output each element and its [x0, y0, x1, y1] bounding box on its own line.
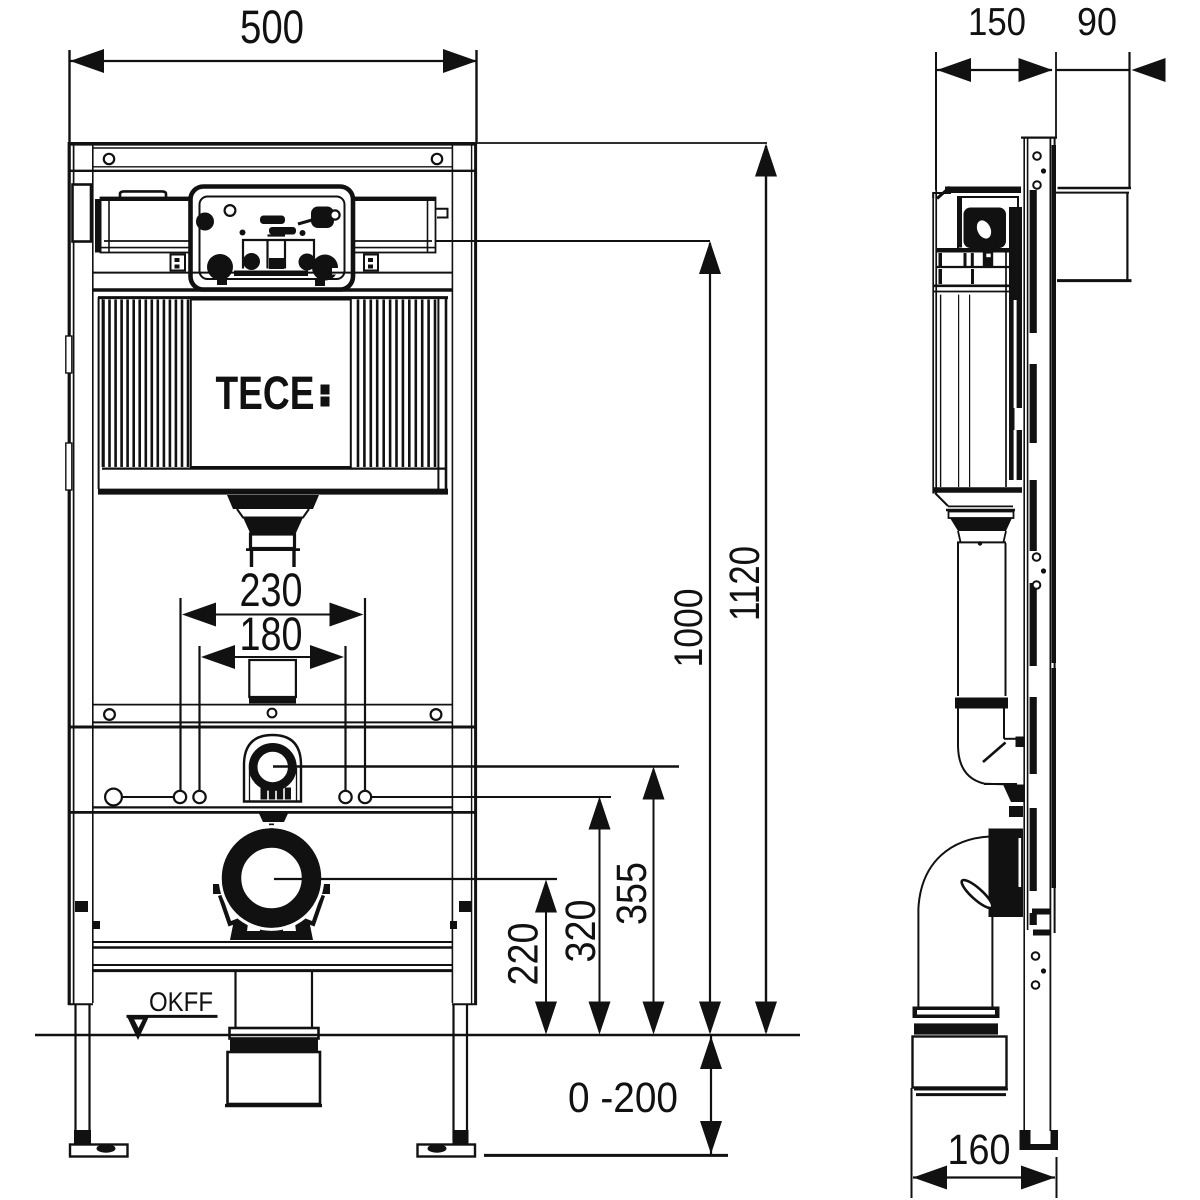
svg-text:355: 355	[609, 862, 656, 925]
svg-text:220: 220	[500, 923, 547, 986]
svg-text:1120: 1120	[722, 546, 769, 621]
svg-text:160: 160	[948, 1127, 1011, 1174]
svg-text:0 -200: 0 -200	[568, 1075, 678, 1122]
svg-text:180: 180	[240, 607, 303, 660]
svg-text:320: 320	[558, 900, 605, 963]
svg-text:90: 90	[1077, 1, 1117, 44]
svg-text:500: 500	[240, 0, 304, 53]
svg-text:1000: 1000	[667, 589, 711, 668]
svg-text:150: 150	[968, 1, 1026, 44]
svg-text:OKFF: OKFF	[149, 987, 213, 1017]
svg-text:TECE: TECE	[216, 366, 315, 419]
